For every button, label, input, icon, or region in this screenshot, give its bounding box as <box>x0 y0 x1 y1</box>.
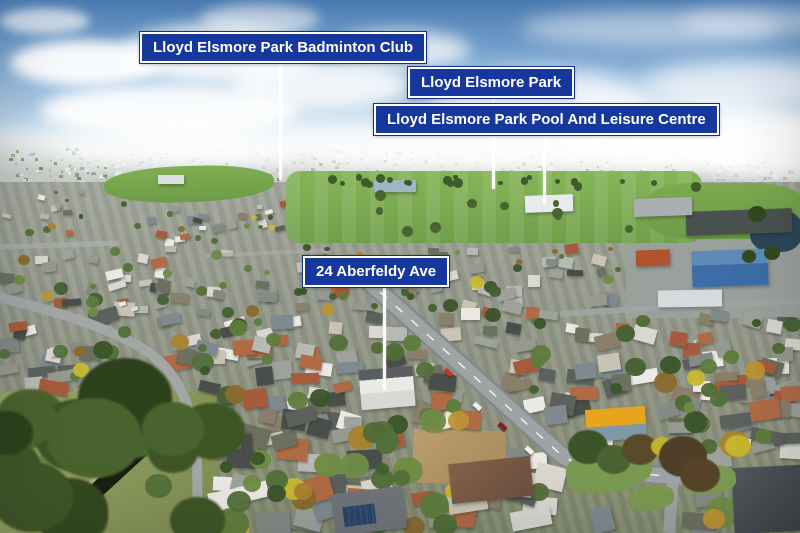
street <box>0 243 120 247</box>
south-road <box>669 464 674 533</box>
reserve-path <box>62 443 160 533</box>
callout-park: Lloyd Elsmore Park <box>408 67 574 98</box>
callout-pool-leisure-centre: Lloyd Elsmore Park Pool And Leisure Cent… <box>374 104 719 135</box>
main-road-edge <box>349 264 800 486</box>
street <box>560 301 800 314</box>
leader-line-badminton-club <box>279 60 282 180</box>
aerial-photo: Lloyd Elsmore Park Badminton Club Lloyd … <box>0 0 800 533</box>
callout-badminton-club: Lloyd Elsmore Park Badminton Club <box>140 32 426 63</box>
leader-line-pool <box>543 130 546 204</box>
callout-property-address: 24 Aberfeldy Ave <box>303 256 449 287</box>
leader-line-property <box>383 284 386 390</box>
water <box>750 210 800 252</box>
